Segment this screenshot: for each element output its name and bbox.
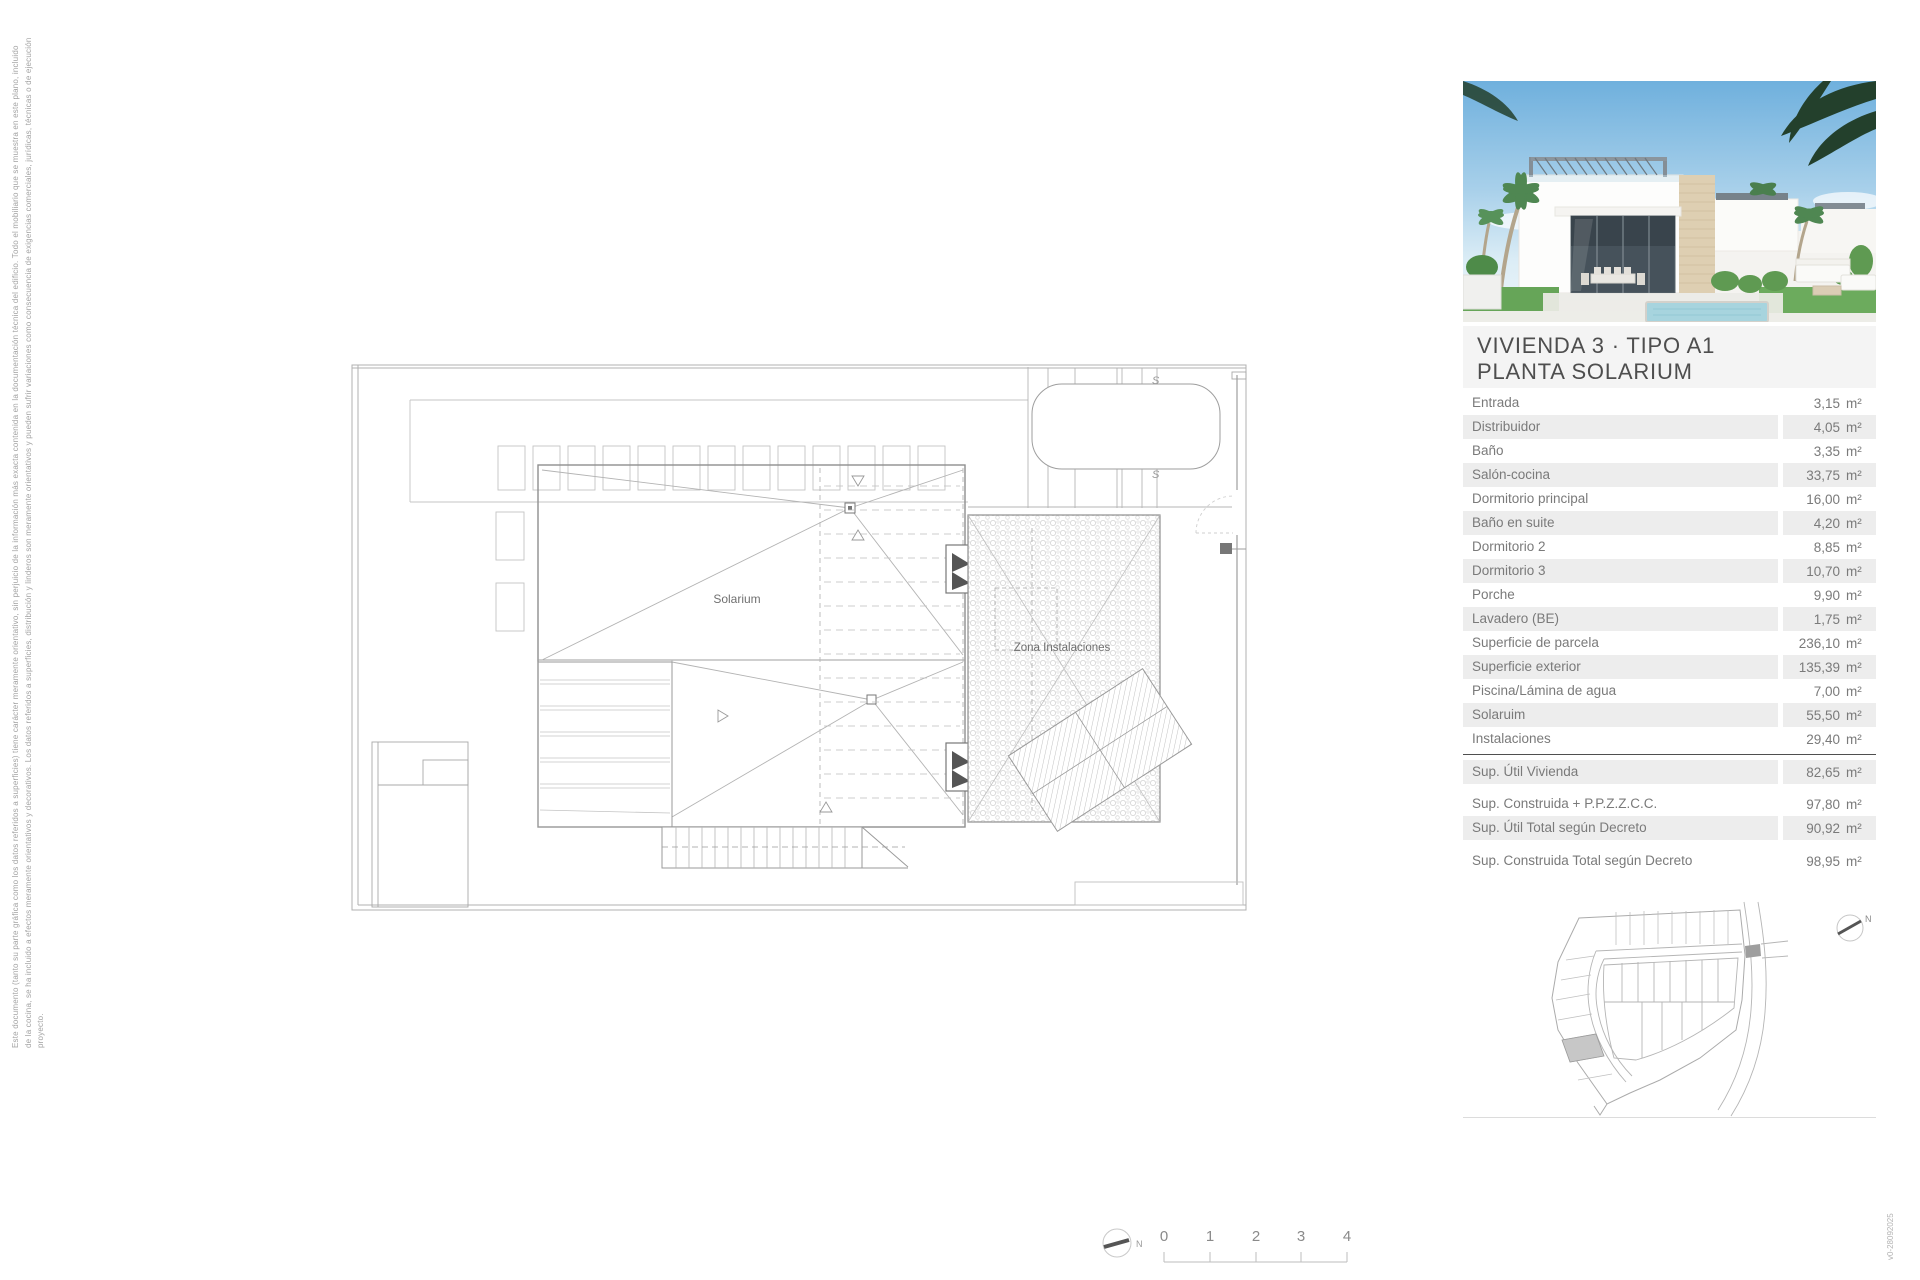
- solarium-roof-lines: [542, 470, 963, 660]
- title-block: VIVIENDA 3 · TIPO A1 PLANTA SOLARIUM: [1463, 326, 1876, 388]
- section-mark: S: [1152, 469, 1160, 481]
- area-unit: m²: [1846, 765, 1872, 780]
- map-compass-needle-icon: [1838, 921, 1861, 934]
- page-title-line1: VIVIENDA 3 · TIPO A1: [1477, 333, 1876, 359]
- canopy: [1555, 207, 1681, 216]
- area-label: Baño en suite: [1463, 511, 1778, 535]
- area-value: 33,75: [1783, 468, 1840, 483]
- area-label: Instalaciones: [1463, 727, 1778, 751]
- zona-label: Zona Instalaciones: [1014, 642, 1111, 654]
- neighbor-house: [1713, 199, 1798, 251]
- highlighted-plot: [1562, 1034, 1604, 1062]
- area-value: 3,35: [1783, 444, 1840, 459]
- area-unit: m²: [1846, 420, 1872, 435]
- total-label: Sup. Útil Total según Decreto: [1463, 816, 1778, 840]
- table-row: Superficie de parcela 236,10m²: [1463, 631, 1876, 655]
- area-unit: m²: [1846, 588, 1872, 603]
- disclaimer-line: Este documento (tanto su parte gráfica c…: [10, 3, 23, 1048]
- table-row: Salón-cocina 33,75m²: [1463, 463, 1876, 487]
- total-value: 97,80: [1783, 797, 1840, 812]
- area-label: Piscina/Lámina de agua: [1463, 679, 1778, 703]
- area-label: Dormitorio 3: [1463, 559, 1778, 583]
- area-value: 7,00: [1783, 684, 1840, 699]
- road-marker: [1745, 944, 1761, 958]
- staircase: [662, 827, 908, 868]
- svg-text:1: 1: [1206, 1228, 1214, 1245]
- area-unit: m²: [1846, 684, 1872, 699]
- area-value: 55,50: [1783, 708, 1840, 723]
- site-boundary: [1552, 910, 1745, 1115]
- plan-markers: [718, 476, 864, 812]
- map-north-letter: N: [1865, 914, 1872, 924]
- roof-drain: [867, 695, 876, 704]
- table-row: Dormitorio 3 10,70m²: [1463, 559, 1876, 583]
- area-value: 4,05: [1783, 420, 1840, 435]
- area-unit: m²: [1846, 468, 1872, 483]
- area-value: 236,10: [1783, 636, 1840, 651]
- solarium-label: Solarium: [713, 592, 760, 606]
- table-row: Dormitorio 2 8,85m²: [1463, 535, 1876, 559]
- area-label: Superficie de parcela: [1463, 631, 1778, 655]
- area-label: Porche: [1463, 583, 1778, 607]
- lower-roof-lines: [672, 660, 963, 827]
- total-label: Sup. Construida + P.P.Z.Z.C.C.: [1463, 792, 1778, 816]
- area-value: 135,39: [1783, 660, 1840, 675]
- roof-drain-dot: [848, 506, 852, 510]
- deck-strip: [820, 468, 963, 824]
- zona-instalaciones: [968, 515, 1192, 831]
- table-row: Instalaciones 29,40m²: [1463, 727, 1876, 751]
- scale-line: [1164, 1252, 1347, 1262]
- area-unit: m²: [1846, 612, 1872, 627]
- louver-block: [538, 662, 672, 827]
- area-unit: m²: [1846, 797, 1872, 812]
- areas-table: Entrada 3,15m² Distribuidor 4,05m² Baño …: [1463, 391, 1876, 873]
- pool: [1646, 302, 1768, 322]
- legal-disclaimer: Este documento (tanto su parte gráfica c…: [10, 3, 48, 1048]
- area-unit: m²: [1846, 564, 1872, 579]
- north-letter: N: [1136, 1239, 1143, 1249]
- villa-photo: [1463, 81, 1876, 322]
- area-unit: m²: [1846, 396, 1872, 411]
- area-unit: m²: [1846, 516, 1872, 531]
- total-value: 90,92: [1783, 821, 1840, 836]
- area-unit: m²: [1846, 732, 1872, 747]
- area-label: Lavadero (BE): [1463, 607, 1778, 631]
- house-outline: [538, 465, 965, 827]
- table-row: Dormitorio principal 16,00m²: [1463, 487, 1876, 511]
- area-value: 10,70: [1783, 564, 1840, 579]
- total-row: Sup. Construida Total según Decreto 98,9…: [1463, 849, 1876, 873]
- svg-text:3: 3: [1297, 1228, 1305, 1245]
- area-value: 4,20: [1783, 516, 1840, 531]
- table-divider: [1463, 754, 1876, 755]
- panel-bottom-divider: [1463, 1117, 1876, 1118]
- table-row: Porche 9,90m²: [1463, 583, 1876, 607]
- area-value: 29,40: [1783, 732, 1840, 747]
- area-label: Salón-cocina: [1463, 463, 1778, 487]
- total-row: Sup. Útil Total según Decreto 90,92m²: [1463, 816, 1876, 840]
- area-unit: m²: [1846, 444, 1872, 459]
- total-row: Sup. Útil Vivienda 82,65m²: [1463, 760, 1876, 784]
- area-unit: m²: [1846, 821, 1872, 836]
- version-label: v0-28092025: [1886, 1213, 1895, 1260]
- area-label: Dormitorio principal: [1463, 487, 1778, 511]
- area-value: 3,15: [1783, 396, 1840, 411]
- area-label: Solaruim: [1463, 703, 1778, 727]
- total-value: 98,95: [1783, 854, 1840, 869]
- area-unit: m²: [1846, 708, 1872, 723]
- scale-numbers: 0 1 2 3 4: [1160, 1228, 1351, 1245]
- area-unit: m²: [1846, 492, 1872, 507]
- table-row: Entrada 3,15m²: [1463, 391, 1876, 415]
- page-title-line2: PLANTA SOLARIUM: [1477, 359, 1876, 385]
- svg-text:4: 4: [1343, 1228, 1351, 1245]
- area-label: Distribuidor: [1463, 415, 1778, 439]
- total-row: Sup. Construida + P.P.Z.Z.C.C. 97,80m²: [1463, 792, 1876, 816]
- table-row: Lavadero (BE) 1,75m²: [1463, 607, 1876, 631]
- table-row: Superficie exterior 135,39m²: [1463, 655, 1876, 679]
- planter-box: [1463, 255, 1501, 309]
- area-unit: m²: [1846, 636, 1872, 651]
- roads: [1588, 902, 1788, 1116]
- table-row: Baño en suite 4,20m²: [1463, 511, 1876, 535]
- table-row: Solaruim 55,50m²: [1463, 703, 1876, 727]
- area-label: Baño: [1463, 439, 1778, 463]
- svg-text:0: 0: [1160, 1228, 1168, 1245]
- total-label: Sup. Útil Vivienda: [1463, 760, 1778, 784]
- area-label: Entrada: [1463, 391, 1778, 415]
- side-structure: [372, 742, 468, 907]
- table-row: Baño 3,35m²: [1463, 439, 1876, 463]
- area-unit: m²: [1846, 660, 1872, 675]
- area-label: Superficie exterior: [1463, 655, 1778, 679]
- disclaimer-line: de la cocina, se ha incluido a efectos m…: [23, 3, 36, 1048]
- table-row: Piscina/Lámina de agua 7,00m²: [1463, 679, 1876, 703]
- area-unit: m²: [1846, 854, 1872, 869]
- area-value: 8,85: [1783, 540, 1840, 555]
- area-value: 9,90: [1783, 588, 1840, 603]
- planter: [1075, 882, 1243, 905]
- site-map: N: [1530, 890, 1890, 1130]
- area-value: 1,75: [1783, 612, 1840, 627]
- area-unit: m²: [1846, 540, 1872, 555]
- plan-sheet: Este documento (tanto su parte gráfica c…: [0, 0, 1920, 1280]
- svg-text:2: 2: [1252, 1228, 1260, 1245]
- area-value: 16,00: [1783, 492, 1840, 507]
- north-needle-icon: [1104, 1240, 1129, 1247]
- area-label: Dormitorio 2: [1463, 535, 1778, 559]
- disclaimer-line: proyecto.: [35, 3, 48, 1048]
- table-row: Distribuidor 4,05m²: [1463, 415, 1876, 439]
- total-value: 82,65: [1783, 765, 1840, 780]
- door-hinge: [1220, 543, 1232, 554]
- scale-bar: N 0 1 2 3 4: [1090, 1215, 1400, 1275]
- total-label: Sup. Construida Total según Decreto: [1463, 849, 1778, 873]
- car-outline: [1032, 384, 1220, 469]
- section-mark: S: [1152, 375, 1160, 387]
- floor-plan: S S: [340, 360, 1260, 920]
